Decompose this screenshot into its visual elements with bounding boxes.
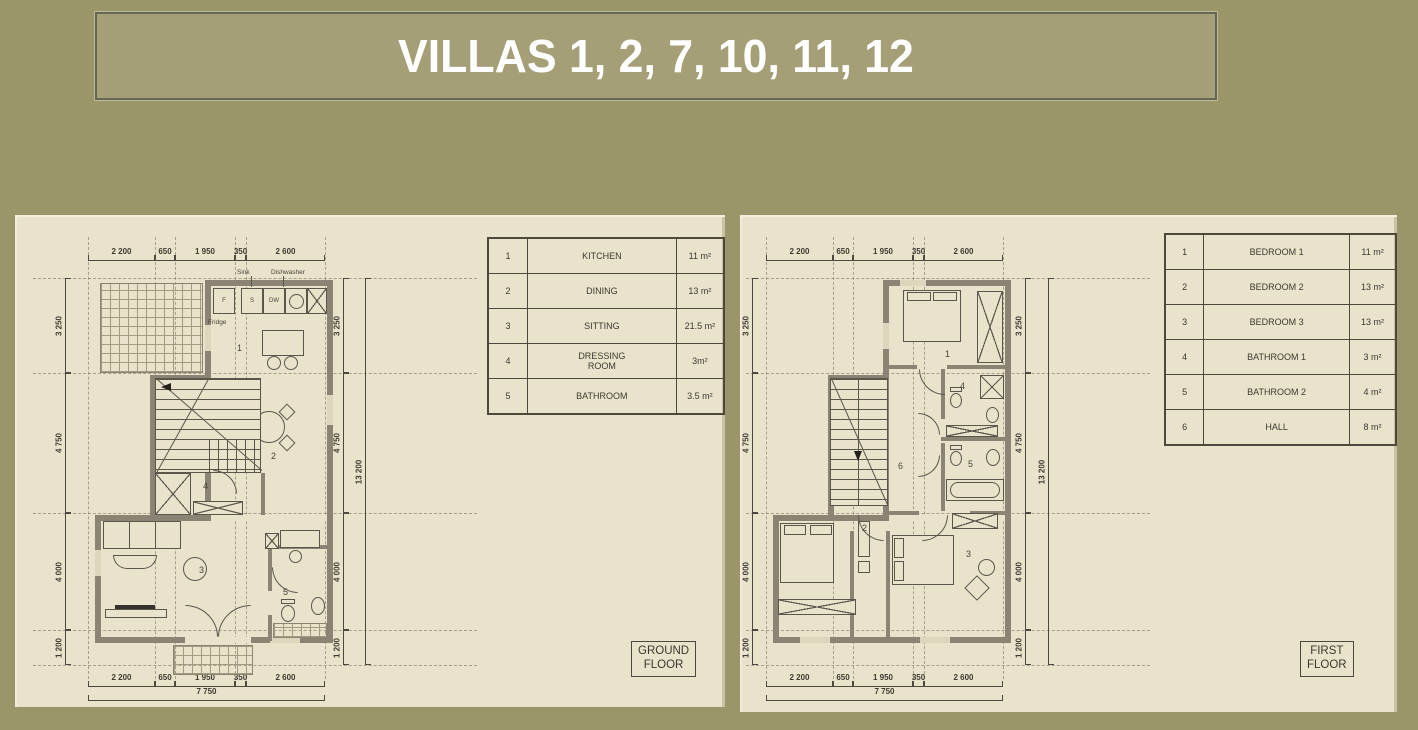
title-banner: VILLAS 1, 2, 7, 10, 11, 12 xyxy=(95,12,1217,100)
first-floor-plan: 2 200 650 1 950 350 2 600 2 200 650 1 95… xyxy=(740,215,1397,712)
dimension-label: 4 750 xyxy=(742,433,751,453)
dimension-label: 1 950 xyxy=(873,247,893,256)
legend-num: 4 xyxy=(488,344,528,379)
dimension-label: 1 200 xyxy=(1015,637,1024,657)
window xyxy=(800,637,830,643)
stair-direction-arrow-icon xyxy=(161,383,171,391)
dimension-label: 2 600 xyxy=(953,247,973,256)
slide-title: VILLAS 1, 2, 7, 10, 11, 12 xyxy=(398,29,914,83)
legend-num: 2 xyxy=(1165,270,1204,305)
legend-row: 3BEDROOM 313 m² xyxy=(1165,305,1396,340)
dimension-label: 13 200 xyxy=(1038,459,1047,483)
dimension-label: 4 000 xyxy=(55,561,64,581)
dimension-label: 1 950 xyxy=(195,247,215,256)
construction-gridline xyxy=(766,237,767,679)
dressing-wardrobe xyxy=(193,501,243,515)
legend-area: 21.5 m² xyxy=(676,309,724,344)
legend-area: 4 m² xyxy=(1350,375,1396,410)
room-number-bathroom1: 4 xyxy=(960,381,965,391)
legend-num: 3 xyxy=(1165,305,1204,340)
dimension-total-width: 7 750 xyxy=(766,695,1003,701)
dimension-label: 13 200 xyxy=(355,459,364,483)
legend-num: 1 xyxy=(488,238,528,274)
legend-area: 3m² xyxy=(676,344,724,379)
dimension-segment: 2 600 xyxy=(924,681,1003,687)
room-number-bathroom: 5 xyxy=(283,587,288,597)
pillow xyxy=(907,292,931,301)
shower xyxy=(980,375,1004,399)
dimension-label: 2 200 xyxy=(789,673,809,682)
construction-gridline xyxy=(33,278,477,279)
wall-bedroom3-side xyxy=(886,531,890,637)
legend-name-text: DRESSING ROOM xyxy=(571,351,633,371)
dimension-segment: 4 750 xyxy=(752,373,758,513)
wall-bathroom-side xyxy=(268,615,272,641)
dimension-label: 2 200 xyxy=(789,247,809,256)
dimension-segment: 1 200 xyxy=(343,630,349,665)
dimension-segment: 650 xyxy=(155,681,175,687)
window xyxy=(327,395,333,425)
legend-name: BEDROOM 3 xyxy=(1204,305,1350,340)
tv-bench xyxy=(105,609,167,618)
sink-abbr: S xyxy=(242,298,262,304)
wall-opening xyxy=(211,515,327,521)
wardrobe xyxy=(977,291,1003,363)
dimension-segment: 1 950 xyxy=(853,255,913,261)
legend-name: SITTING xyxy=(528,309,677,344)
dimension-segment: 4 000 xyxy=(65,513,71,630)
dishwasher-label: Dishwasher xyxy=(271,269,305,276)
dimension-segment: 2 200 xyxy=(766,255,833,261)
leader-line xyxy=(283,276,284,287)
room-number-dressing: 4 xyxy=(203,481,208,491)
construction-gridline xyxy=(746,278,1150,279)
bathroom-floor-tiles xyxy=(273,623,327,638)
dimension-segment: 4 000 xyxy=(343,513,349,630)
dimension-segment: 2 200 xyxy=(766,681,833,687)
washbasin xyxy=(986,449,1000,466)
terrace-tiles xyxy=(100,283,203,373)
legend-row: 2DINING13 m² xyxy=(488,274,724,309)
dimension-total-height: 13 200 xyxy=(1048,278,1054,665)
dimension-segment: 350 xyxy=(235,681,246,687)
window xyxy=(883,323,889,349)
dimension-label: 4 750 xyxy=(333,433,342,453)
washbasin xyxy=(986,407,999,423)
legend-num: 3 xyxy=(488,309,528,344)
stool xyxy=(267,356,281,370)
staircase-lower-flight xyxy=(209,440,261,472)
dimension-label: 4 000 xyxy=(742,561,751,581)
wall-hall-bottom xyxy=(889,511,919,515)
dimension-label: 7 750 xyxy=(196,687,216,696)
room-number-hall: 6 xyxy=(898,461,903,471)
legend-area: 13 m² xyxy=(1350,270,1396,305)
dimension-label: 4 000 xyxy=(333,561,342,581)
legend-name: BATHROOM 2 xyxy=(1204,375,1350,410)
dimension-segment: 4 000 xyxy=(1025,513,1031,630)
dimension-label: 7 750 xyxy=(874,687,894,696)
wall-bedroom2-side xyxy=(850,531,854,637)
toilet-bowl xyxy=(950,451,962,466)
sofa xyxy=(103,521,181,549)
construction-gridline xyxy=(33,665,477,666)
dimension-segment: 1 200 xyxy=(1025,630,1031,665)
dimension-segment: 2 600 xyxy=(246,681,325,687)
entrance-opening xyxy=(185,637,251,643)
dishwasher-abbr: DW xyxy=(264,298,284,304)
pillow xyxy=(810,525,832,535)
wall-bathrooms-side xyxy=(941,443,945,511)
construction-gridline xyxy=(746,665,1150,666)
wall-bathroom-divider xyxy=(941,437,1005,441)
legend-row: 2BEDROOM 213 m² xyxy=(1165,270,1396,305)
dimension-label: 1 200 xyxy=(55,637,64,657)
pillow xyxy=(894,561,904,581)
dishwasher-unit: DW xyxy=(263,288,285,314)
legend-num: 6 xyxy=(1165,410,1204,446)
legend-num: 2 xyxy=(488,274,528,309)
hall-cabinet xyxy=(946,425,998,437)
dimension-segment: 1 950 xyxy=(175,255,235,261)
floor-label-line1: FIRST xyxy=(1307,645,1347,659)
legend-num: 1 xyxy=(1165,234,1204,270)
first-floor-title-box: FIRST FLOOR xyxy=(1300,641,1354,677)
toilet-bowl xyxy=(950,393,962,408)
legend-row: 4DRESSING ROOM3m² xyxy=(488,344,724,379)
dimension-segment: 2 600 xyxy=(246,255,325,261)
legend-row: 1BEDROOM 111 m² xyxy=(1165,234,1396,270)
fridge: F xyxy=(213,288,235,314)
toilet-bowl xyxy=(281,605,295,622)
legend-row: 5BATHROOM3.5 m² xyxy=(488,379,724,415)
ground-floor-legend-table: 1KITCHEN11 m² 2DINING13 m² 3SITTING21.5 … xyxy=(487,237,725,415)
dimension-segment: 4 750 xyxy=(343,373,349,513)
legend-area: 11 m² xyxy=(1350,234,1396,270)
dimension-segment: 650 xyxy=(833,255,853,261)
room-number-bathroom2: 5 xyxy=(968,459,973,469)
fridge-label: Fridge xyxy=(208,319,226,326)
legend-num: 5 xyxy=(488,379,528,415)
construction-gridline xyxy=(88,237,89,679)
desk-chair xyxy=(289,550,302,563)
pillow xyxy=(894,538,904,558)
legend-area: 3.5 m² xyxy=(676,379,724,415)
legend-row: 5BATHROOM 24 m² xyxy=(1165,375,1396,410)
legend-name: DINING xyxy=(528,274,677,309)
dimension-segment: 4 750 xyxy=(1025,373,1031,513)
ground-floor-plan: 2 200 650 1 950 350 2 600 2 200 650 1 95… xyxy=(15,215,725,707)
dimension-label: 650 xyxy=(158,247,171,256)
legend-name: BATHROOM xyxy=(528,379,677,415)
dimension-label: 2 600 xyxy=(275,673,295,682)
dressing-wardrobe xyxy=(155,473,191,515)
wardrobe xyxy=(952,513,998,529)
dimension-label: 2 200 xyxy=(111,673,131,682)
legend-name: KITCHEN xyxy=(528,238,677,274)
dimension-label: 650 xyxy=(158,673,171,682)
dimension-label: 2 600 xyxy=(953,673,973,682)
dimension-label: 1 950 xyxy=(873,673,893,682)
entrance-porch-tiles xyxy=(173,645,253,675)
slide-background: VILLAS 1, 2, 7, 10, 11, 12 2 200 650 1 9… xyxy=(0,0,1418,730)
legend-row: 1KITCHEN11 m² xyxy=(488,238,724,274)
legend-row: 4BATHROOM 13 m² xyxy=(1165,340,1396,375)
fridge-abbr: F xyxy=(214,298,234,304)
legend-name: BEDROOM 1 xyxy=(1204,234,1350,270)
dimension-segment: 4 000 xyxy=(752,513,758,630)
window xyxy=(205,325,211,351)
dimension-total-height: 13 200 xyxy=(365,278,371,665)
cooktop-burner-icon xyxy=(289,294,304,309)
corridor-stool xyxy=(858,561,870,573)
dimension-segment: 2 600 xyxy=(924,255,1003,261)
legend-name: BEDROOM 2 xyxy=(1204,270,1350,305)
dimension-label: 4 750 xyxy=(55,433,64,453)
dimension-label: 2 200 xyxy=(111,247,131,256)
legend-area: 11 m² xyxy=(676,238,724,274)
legend-num: 5 xyxy=(1165,375,1204,410)
dimension-label: 3 250 xyxy=(55,315,64,335)
wardrobe xyxy=(778,599,856,615)
legend-area: 8 m² xyxy=(1350,410,1396,446)
dimension-label: 4 000 xyxy=(1015,561,1024,581)
toilet-tank xyxy=(281,599,295,604)
sink-label: Sink xyxy=(237,269,250,276)
legend-num: 4 xyxy=(1165,340,1204,375)
dimension-label: 4 750 xyxy=(1015,433,1024,453)
pillow xyxy=(784,525,806,535)
pillow xyxy=(933,292,957,301)
legend-area: 3 m² xyxy=(1350,340,1396,375)
wall-bedroom1 xyxy=(947,365,1005,369)
toilet-tank xyxy=(950,445,962,450)
legend-area: 13 m² xyxy=(676,274,724,309)
kitchen-island xyxy=(262,330,304,356)
kitchen-cabinet xyxy=(307,288,327,314)
dimension-segment: 3 250 xyxy=(1025,278,1031,373)
dimension-label: 3 250 xyxy=(742,315,751,335)
dimension-segment: 3 250 xyxy=(343,278,349,373)
legend-row: 6HALL8 m² xyxy=(1165,410,1396,446)
cooktop xyxy=(285,288,307,314)
legend-name: DRESSING ROOM xyxy=(528,344,677,379)
legend-area: 13 m² xyxy=(1350,305,1396,340)
sink-unit: S xyxy=(241,288,263,314)
legend-row: 3SITTING21.5 m² xyxy=(488,309,724,344)
room-number-sitting: 3 xyxy=(199,565,204,575)
dimension-label: 1 200 xyxy=(333,637,342,657)
dimension-segment: 2 200 xyxy=(88,681,155,687)
dimension-total-width: 7 750 xyxy=(88,695,325,701)
room-number-dining: 2 xyxy=(271,451,276,461)
dimension-segment: 3 250 xyxy=(65,278,71,373)
room-number-bedroom1: 1 xyxy=(945,349,950,359)
cabinet xyxy=(265,533,279,549)
chair xyxy=(978,559,995,576)
ground-floor-title-box: GROUND FLOOR xyxy=(631,641,696,677)
dimension-segment: 2 200 xyxy=(88,255,155,261)
dimension-segment: 350 xyxy=(235,255,246,261)
dimension-label: 2 600 xyxy=(275,247,295,256)
dimension-segment: 350 xyxy=(913,681,924,687)
floor-label-line2: FLOOR xyxy=(638,659,689,673)
window xyxy=(920,637,950,643)
dimension-segment: 650 xyxy=(833,681,853,687)
tv xyxy=(115,605,155,609)
room-number-kitchen: 1 xyxy=(237,343,242,353)
dimension-segment: 3 250 xyxy=(752,278,758,373)
dimension-segment: 350 xyxy=(913,255,924,261)
bathtub-inner xyxy=(950,482,1000,498)
stool xyxy=(284,356,298,370)
washbasin xyxy=(311,597,325,615)
dimension-segment: 650 xyxy=(155,255,175,261)
legend-name: HALL xyxy=(1204,410,1350,446)
floor-label-line1: GROUND xyxy=(638,645,689,659)
window xyxy=(900,280,926,286)
window xyxy=(95,550,101,576)
wall-bedroom1 xyxy=(889,365,917,369)
leader-line xyxy=(251,276,252,287)
dimension-label: 1 200 xyxy=(742,637,751,657)
legend-name: BATHROOM 1 xyxy=(1204,340,1350,375)
first-floor-legend-table: 1BEDROOM 111 m² 2BEDROOM 213 m² 3BEDROOM… xyxy=(1164,233,1397,446)
dimension-label: 650 xyxy=(836,673,849,682)
dimension-segment: 4 750 xyxy=(65,373,71,513)
dimension-segment: 1 200 xyxy=(65,630,71,665)
desk xyxy=(280,530,320,548)
stair-direction-arrow-icon xyxy=(854,451,862,461)
floor-label-line2: FLOOR xyxy=(1307,659,1347,673)
bathtub xyxy=(946,479,1004,501)
dimension-segment: 1 200 xyxy=(752,630,758,665)
dimension-label: 3 250 xyxy=(1015,315,1024,335)
room-number-bedroom3: 3 xyxy=(966,549,971,559)
wall-dressing-side xyxy=(261,473,265,515)
room-number-bedroom2: 2 xyxy=(862,523,867,533)
dimension-label: 3 250 xyxy=(333,315,342,335)
dimension-label: 650 xyxy=(836,247,849,256)
